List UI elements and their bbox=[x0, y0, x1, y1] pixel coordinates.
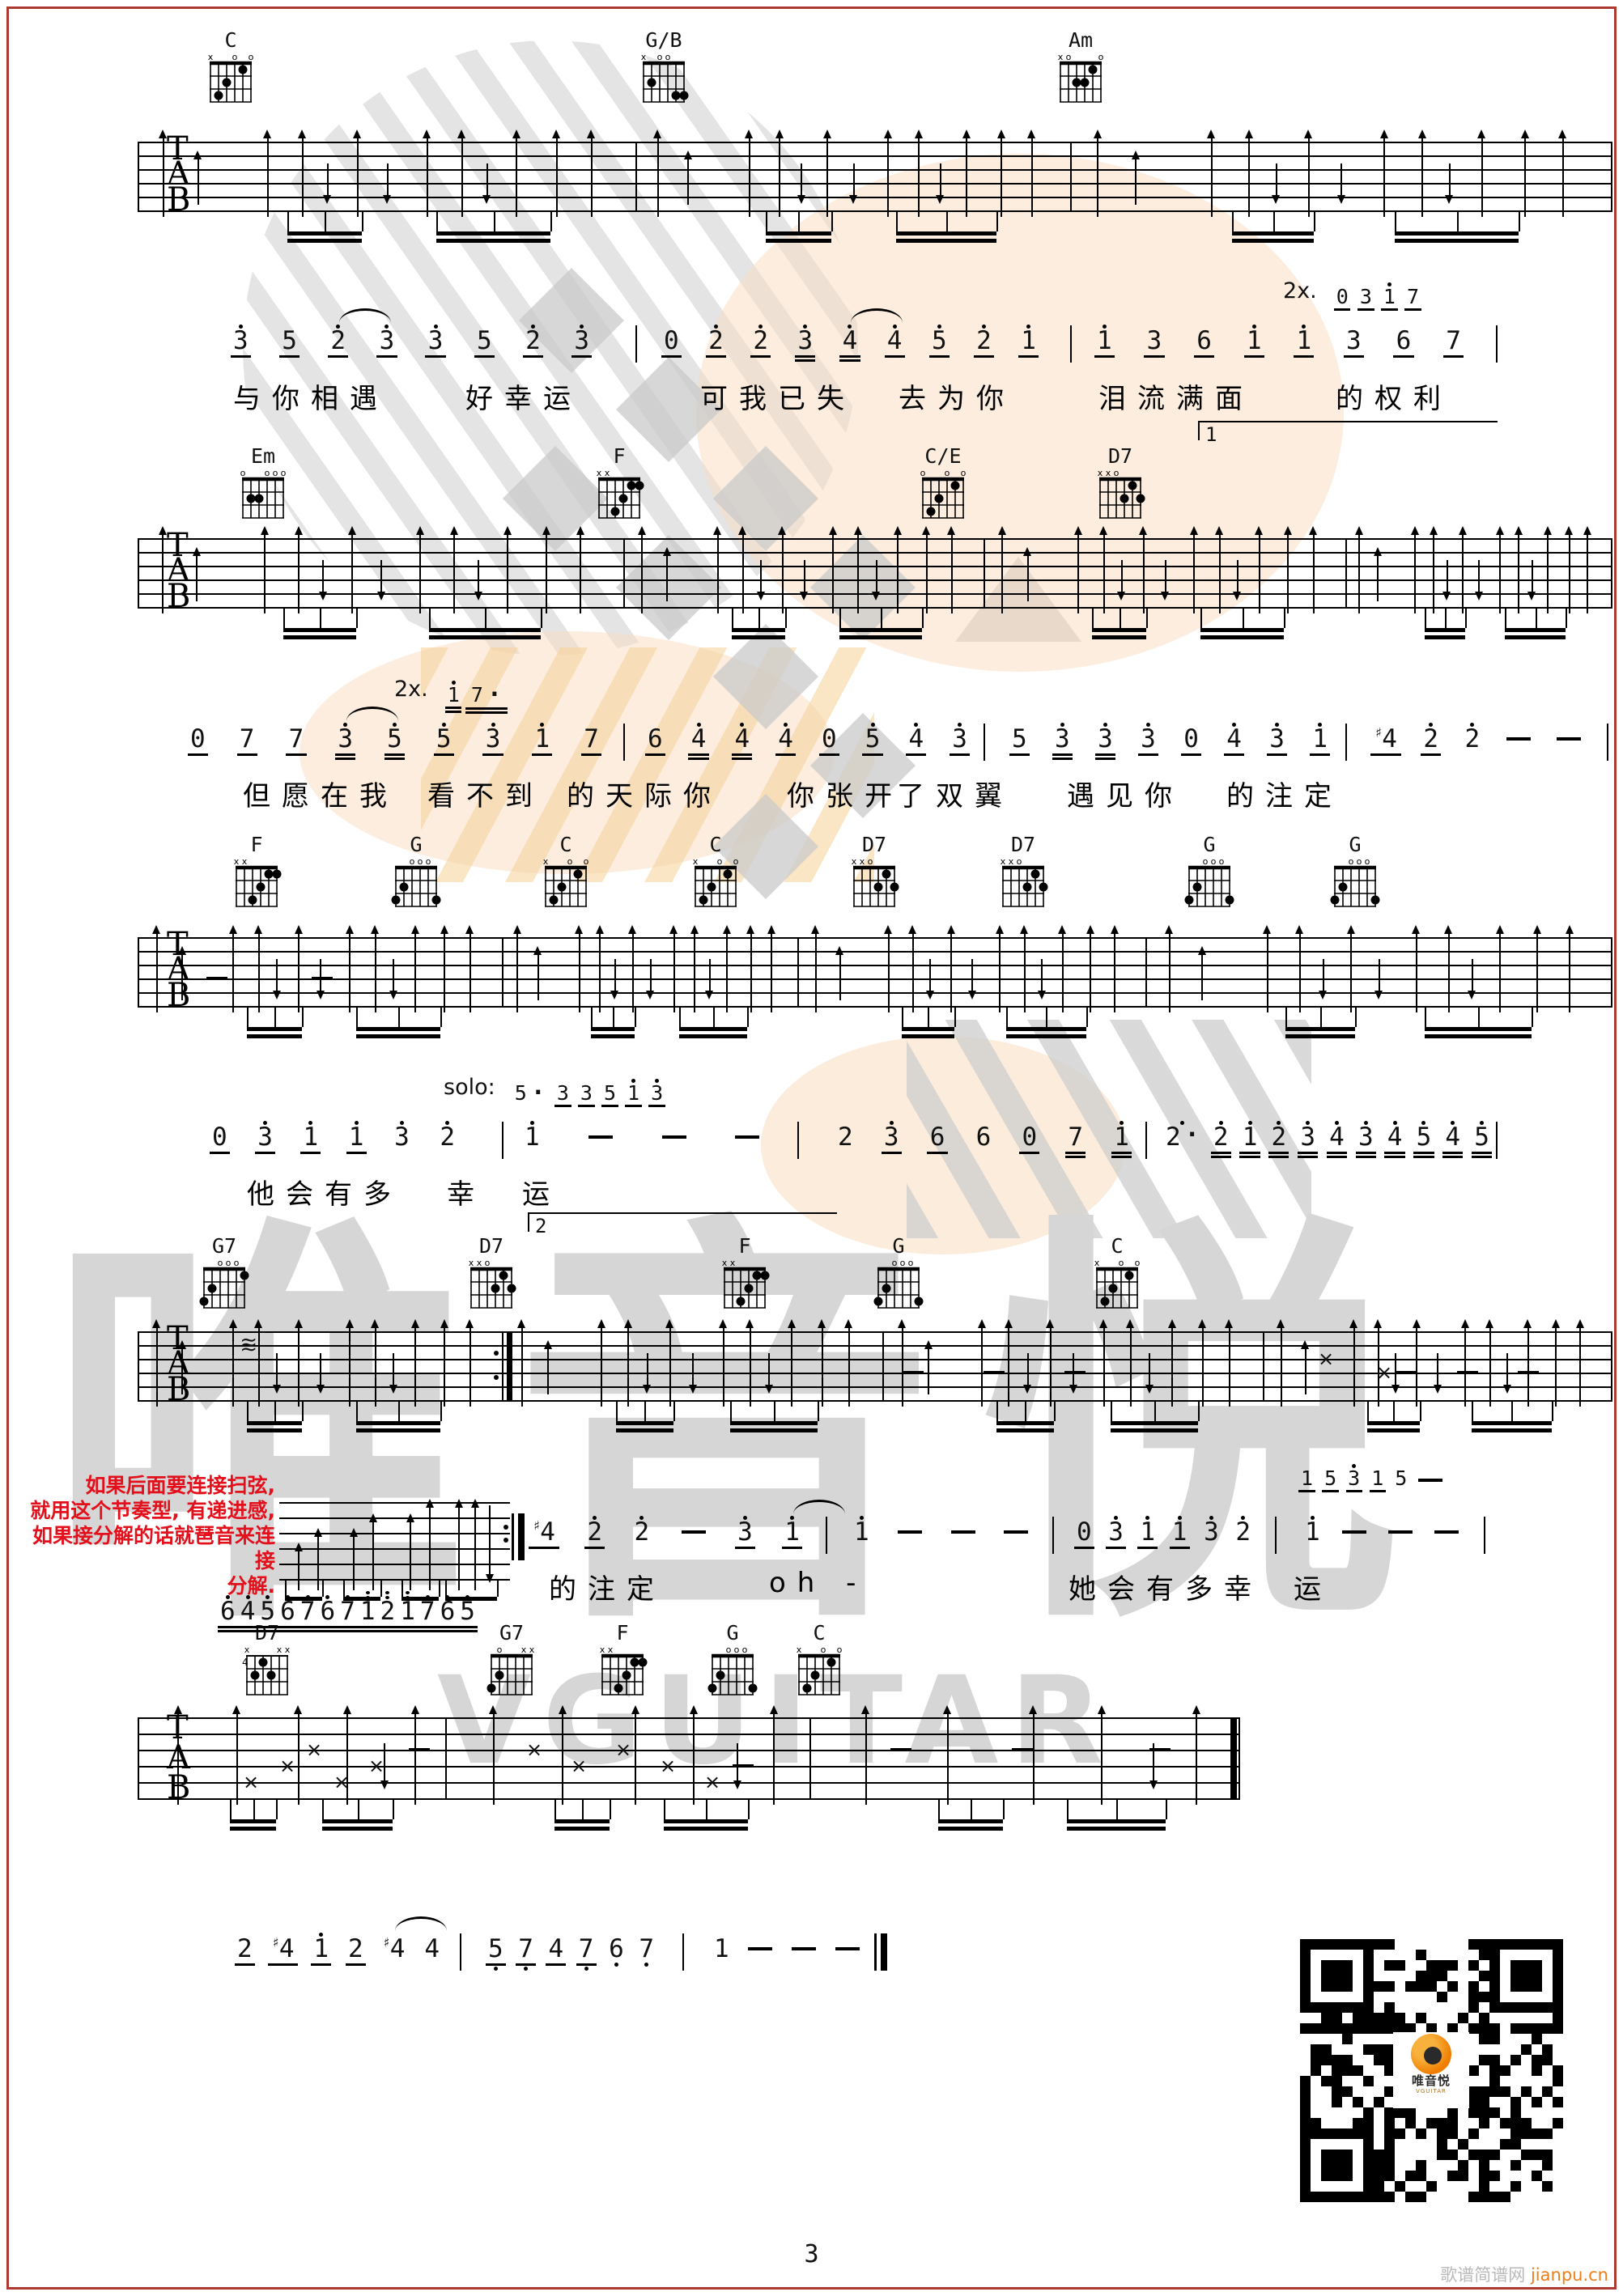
jianpu-digit: 4 bbox=[887, 329, 903, 354]
beam bbox=[732, 635, 786, 639]
underline bbox=[661, 355, 682, 358]
dash-note bbox=[588, 1135, 613, 1139]
jianpu-digit: 2 bbox=[525, 329, 541, 354]
qr-module bbox=[1384, 2013, 1395, 2023]
jianpu-digit: 6 bbox=[976, 1125, 992, 1150]
staff-barline bbox=[138, 538, 139, 609]
qr-module bbox=[1384, 2002, 1395, 2013]
underline bbox=[732, 753, 752, 756]
note-token: 7 bbox=[240, 719, 255, 763]
qr-module bbox=[1468, 2150, 1479, 2160]
jianpu-digit: 5 bbox=[260, 1599, 275, 1624]
arrowhead-up bbox=[411, 1705, 419, 1714]
underline bbox=[1370, 1490, 1386, 1492]
digit-row: 2 bbox=[976, 329, 992, 354]
arrowhead-up bbox=[159, 526, 167, 535]
underline bbox=[1065, 1156, 1086, 1158]
beam-stem bbox=[274, 1400, 276, 1421]
arrowhead-up bbox=[1418, 129, 1426, 138]
chord-name: D7 bbox=[848, 834, 900, 856]
strum-up-arrow bbox=[1353, 1326, 1355, 1407]
qr-module bbox=[1542, 2150, 1553, 2160]
jianpu-digit: 1 bbox=[1312, 727, 1328, 752]
digit-row: 3 bbox=[1141, 727, 1156, 752]
qr-module bbox=[1447, 1960, 1458, 1971]
staff-dash bbox=[312, 977, 333, 980]
qr-module bbox=[1405, 2192, 1416, 2202]
qr-module bbox=[1384, 1960, 1395, 1971]
strum-up-arrow bbox=[1143, 533, 1145, 613]
strum-up-arrow bbox=[918, 137, 920, 217]
note-token: 5 bbox=[1395, 1460, 1407, 1496]
strum-down-arrow bbox=[393, 959, 394, 992]
underline bbox=[465, 707, 507, 710]
svg-text:x: x bbox=[1001, 856, 1006, 867]
arrowhead-up bbox=[193, 547, 201, 556]
beam-stem bbox=[766, 210, 767, 231]
staff-line bbox=[138, 1734, 1238, 1735]
chord-name: C bbox=[540, 834, 592, 856]
qr-module bbox=[1521, 2023, 1532, 2034]
qr-module bbox=[1332, 2013, 1342, 2023]
digit-row: 7 bbox=[579, 1937, 594, 1962]
qr-finder-core bbox=[1321, 2150, 1353, 2181]
note-token bbox=[748, 1929, 772, 1950]
beam-stem bbox=[1116, 1798, 1118, 1819]
svg-text:o: o bbox=[567, 856, 573, 867]
note-token: 2 bbox=[753, 320, 768, 365]
jianpu-digit: 4 bbox=[1387, 1125, 1403, 1150]
digit-row: 7 bbox=[518, 1937, 533, 1962]
note-token: 3 bbox=[428, 320, 444, 365]
staff-dash bbox=[1064, 1371, 1086, 1374]
arrowhead-up bbox=[829, 526, 837, 535]
qr-module bbox=[1510, 2118, 1521, 2128]
strum-up-arrow bbox=[839, 953, 841, 1000]
arrowhead-up bbox=[653, 129, 661, 138]
strum-up-arrow bbox=[461, 137, 463, 217]
svg-text:o: o bbox=[485, 1258, 491, 1268]
note-token: 3 bbox=[884, 1117, 899, 1161]
arrowhead-down bbox=[800, 592, 808, 601]
note-token: 1 bbox=[304, 1117, 319, 1161]
qr-module bbox=[1468, 2107, 1479, 2118]
note-token: 3 bbox=[1098, 719, 1113, 767]
note-token: 3 bbox=[233, 320, 249, 365]
chord-C: Cxoo bbox=[1091, 1235, 1143, 1326]
arrowhead-up bbox=[450, 526, 458, 535]
digit-row: 1 bbox=[1305, 1520, 1320, 1545]
repeat-dot bbox=[494, 1375, 499, 1380]
chord-name: D7 bbox=[465, 1235, 517, 1258]
jianpu-digit: 3 bbox=[574, 329, 589, 354]
jianpu-digit: 2 bbox=[330, 329, 346, 354]
digit-row: 7 bbox=[289, 727, 304, 752]
beam-stem bbox=[839, 607, 841, 628]
qr-finder-core bbox=[1321, 1960, 1353, 1992]
arrowhead-up bbox=[854, 526, 862, 535]
jianpu-measure: 1 bbox=[714, 1929, 860, 1969]
staff-barline bbox=[138, 142, 139, 212]
dash-note bbox=[1418, 1479, 1442, 1482]
jianpu-measure: 077355317 bbox=[190, 719, 599, 767]
octave-dots-below bbox=[584, 1967, 588, 1973]
arrowhead-up bbox=[943, 1705, 951, 1714]
note-token: 2 bbox=[440, 1117, 455, 1157]
svg-text:o: o bbox=[1119, 1258, 1124, 1268]
strum-up-arrow bbox=[1135, 158, 1137, 205]
qr-module bbox=[1553, 2118, 1563, 2128]
qr-module bbox=[1532, 2034, 1542, 2044]
chord-G: Gooo bbox=[1183, 834, 1235, 924]
note-token: 1 bbox=[1114, 1117, 1129, 1165]
strum-up-arrow bbox=[177, 1712, 179, 1805]
page-number: 3 bbox=[0, 2240, 1623, 2268]
beam-stem bbox=[398, 1400, 400, 1421]
beam-stem bbox=[393, 1798, 394, 1819]
beam bbox=[1285, 1027, 1355, 1031]
repeat-thick-bar bbox=[518, 1513, 525, 1560]
arrowhead-up bbox=[587, 129, 595, 138]
tab-letters: TAB bbox=[167, 931, 190, 1007]
arrowhead-up bbox=[690, 925, 699, 934]
staff-line bbox=[138, 210, 1611, 212]
note-token: 2 bbox=[587, 1512, 602, 1556]
jianpu-digit: 4 bbox=[1445, 1125, 1460, 1150]
underline bbox=[1211, 1156, 1231, 1158]
arrowhead-down bbox=[482, 195, 491, 204]
jianpu-digit: 7 bbox=[289, 727, 304, 752]
mute-x-mark: × bbox=[571, 1756, 587, 1776]
note-token: 7 bbox=[1407, 278, 1419, 318]
strum-up-arrow bbox=[1281, 1326, 1282, 1407]
jianpu-digit: 1 bbox=[534, 727, 550, 752]
strum-up-arrow bbox=[1097, 137, 1098, 217]
note-token: 1 bbox=[854, 1512, 869, 1552]
underline bbox=[457, 1626, 478, 1628]
digit-row: 6 bbox=[220, 1599, 236, 1624]
note-token: 1 bbox=[1305, 1512, 1320, 1552]
jianpu-barline bbox=[826, 1517, 827, 1554]
qr-module bbox=[1479, 2055, 1489, 2065]
digit-row: 1 bbox=[534, 727, 550, 752]
qr-module bbox=[1510, 2160, 1521, 2171]
strum-up-arrow bbox=[1196, 1712, 1197, 1805]
strum-up-arrow bbox=[1562, 137, 1564, 217]
digit-row: 0 bbox=[1183, 727, 1199, 752]
underline bbox=[1472, 1152, 1492, 1154]
staff-line bbox=[138, 1331, 1611, 1333]
underline bbox=[235, 1963, 255, 1966]
digit-row: 1 bbox=[313, 1937, 329, 1962]
digit-row: 6 bbox=[930, 1125, 945, 1150]
note-token: 0 bbox=[212, 1117, 227, 1161]
arrowhead-down bbox=[757, 592, 765, 601]
jianpu-digit: 5 bbox=[604, 1083, 616, 1103]
strum-up-arrow bbox=[198, 158, 199, 205]
arrowhead-up bbox=[1576, 1319, 1584, 1328]
strum-up-arrow bbox=[822, 1326, 823, 1407]
digit-row: 6 bbox=[976, 1125, 992, 1150]
svg-text:o: o bbox=[908, 1258, 914, 1268]
strum-up-arrow bbox=[926, 533, 928, 613]
inset-jianpu-measure: 6456767121765 bbox=[220, 1591, 475, 1640]
beam bbox=[1285, 1034, 1355, 1038]
chord-name: G/B bbox=[638, 29, 690, 52]
jianpu-digit: 2 bbox=[380, 1599, 396, 1624]
digit-row: 3 bbox=[580, 1083, 593, 1103]
beam-stem bbox=[1067, 1798, 1069, 1819]
jianpu-measure: 2366071 bbox=[838, 1117, 1129, 1165]
beam bbox=[287, 231, 362, 236]
svg-text:x: x bbox=[597, 468, 602, 478]
beam-stem bbox=[1284, 607, 1285, 628]
underline bbox=[645, 753, 665, 756]
repeat-thin-bar bbox=[512, 1513, 514, 1560]
beam bbox=[938, 1827, 1003, 1831]
strum-up-arrow bbox=[601, 1326, 602, 1407]
beam-stem bbox=[747, 1006, 749, 1027]
underline bbox=[532, 753, 552, 756]
qr-module bbox=[1553, 2013, 1563, 2023]
qr-module bbox=[1405, 2118, 1416, 2128]
inset-up-arrow bbox=[353, 1535, 355, 1590]
staff-barline bbox=[797, 937, 799, 1008]
qr-module bbox=[1468, 1992, 1479, 2002]
qr-module bbox=[1553, 2097, 1563, 2107]
arrowhead-up bbox=[1058, 925, 1066, 934]
digit-row: 6 bbox=[648, 727, 663, 752]
staff-dash bbox=[903, 1371, 924, 1374]
jianpu-digit: 3 bbox=[884, 1125, 899, 1150]
qr-module bbox=[1521, 2128, 1532, 2139]
jianpu-digit: 4 bbox=[279, 1937, 295, 1962]
qr-module bbox=[1510, 2181, 1521, 2192]
digit-row: 1 bbox=[525, 1125, 540, 1150]
underline bbox=[1106, 1547, 1126, 1549]
underline bbox=[1322, 1490, 1338, 1492]
digit-row: 6 bbox=[440, 1599, 456, 1624]
strum-up-arrow bbox=[999, 932, 1001, 1012]
strum-down-arrow bbox=[1395, 1353, 1396, 1386]
arrowhead-up bbox=[778, 526, 786, 535]
arrowhead-up bbox=[1263, 925, 1271, 934]
arrowhead-up bbox=[1485, 1319, 1493, 1328]
chord-grid: xoo bbox=[793, 1645, 845, 1709]
note-token: 1 bbox=[313, 1929, 329, 1973]
note-token: 7 bbox=[289, 719, 304, 763]
svg-text:x: x bbox=[244, 1645, 250, 1655]
arrowhead-up bbox=[596, 925, 604, 934]
inset-up-arrow bbox=[410, 1521, 411, 1590]
strum-down-arrow bbox=[929, 959, 931, 992]
arrowhead-up bbox=[1374, 1319, 1382, 1328]
beam-stem bbox=[320, 607, 321, 628]
strum-up-arrow bbox=[1383, 137, 1385, 217]
qr-module bbox=[1489, 2192, 1500, 2202]
staff-barline bbox=[984, 538, 985, 609]
digit-row: 6 bbox=[1396, 329, 1412, 354]
note-token: 2 bbox=[976, 320, 992, 365]
arrowhead-up bbox=[1198, 1319, 1206, 1328]
qr-module bbox=[1489, 2065, 1500, 2076]
underline bbox=[578, 1105, 594, 1107]
note-token: 5 bbox=[282, 320, 297, 365]
svg-text:o: o bbox=[234, 1258, 240, 1268]
arrowhead-down bbox=[1374, 991, 1383, 999]
underline bbox=[237, 1626, 257, 1628]
arrowhead-down bbox=[380, 1780, 389, 1789]
dash-note bbox=[1388, 1530, 1413, 1534]
annotation-line: 2x.17· bbox=[394, 677, 502, 721]
qr-module bbox=[1542, 2023, 1553, 2034]
digit-row: 5 bbox=[1474, 1125, 1489, 1150]
arrowhead-down bbox=[1023, 1385, 1031, 1394]
note-token: 1 bbox=[1247, 320, 1262, 365]
staff-line bbox=[138, 538, 1611, 540]
arrowhead-up bbox=[947, 925, 955, 934]
beam bbox=[230, 1819, 276, 1823]
svg-text:x: x bbox=[242, 856, 248, 867]
jianpu-measure: ♯422 bbox=[1374, 719, 1581, 763]
strum-up-arrow bbox=[1202, 1326, 1204, 1407]
note-token: 1 bbox=[1312, 719, 1328, 763]
digit-row: 2 bbox=[635, 1520, 650, 1545]
digit-row: ♯4 bbox=[272, 1937, 295, 1962]
jianpu-digit: 2 bbox=[440, 1125, 455, 1150]
strum-down-arrow bbox=[393, 1353, 394, 1386]
beam-stem bbox=[230, 1798, 232, 1819]
underline bbox=[885, 355, 905, 358]
underline bbox=[317, 1630, 338, 1632]
chord-D7: D7xxo bbox=[848, 834, 900, 924]
strum-up-arrow bbox=[264, 533, 266, 613]
underline bbox=[523, 355, 543, 358]
qr-module bbox=[1500, 2139, 1510, 2150]
qr-module bbox=[1447, 1981, 1458, 1992]
chord-F: Fxx bbox=[597, 1622, 648, 1712]
qr-center-logo: 唯音悦 VGUITAR bbox=[1393, 2032, 1469, 2108]
note-token: 1 bbox=[525, 1117, 540, 1157]
qr-module bbox=[1426, 1960, 1437, 1971]
digit-row: ♯4 bbox=[383, 1937, 406, 1962]
beam-stem bbox=[928, 1006, 929, 1027]
volta-number: 2 bbox=[535, 1215, 546, 1237]
beam-stem bbox=[774, 1400, 775, 1421]
underline bbox=[950, 753, 970, 756]
strum-up-arrow bbox=[641, 533, 643, 613]
arrowhead-up bbox=[1566, 925, 1574, 934]
svg-text:x: x bbox=[605, 468, 610, 478]
qr-module bbox=[1332, 2097, 1342, 2107]
beam bbox=[664, 1819, 748, 1823]
strum-up-arrow bbox=[537, 953, 539, 1000]
annotation-label: solo: bbox=[444, 1075, 495, 1100]
underline bbox=[1442, 1152, 1463, 1154]
digit-row: 4 bbox=[424, 1937, 440, 1962]
beam bbox=[1111, 1428, 1198, 1432]
chord-grid: ooo bbox=[917, 468, 969, 533]
digit-row: 2 bbox=[348, 1937, 363, 1962]
digit-row: 2 bbox=[1464, 727, 1480, 752]
beam bbox=[356, 1034, 440, 1038]
qr-module bbox=[1468, 2128, 1479, 2139]
lyrics-segment: 可我已失 bbox=[700, 376, 856, 416]
underline bbox=[1356, 1152, 1376, 1154]
strum-down-arrow bbox=[1340, 163, 1342, 197]
beam bbox=[896, 231, 996, 236]
qr-module bbox=[1384, 2139, 1395, 2150]
chord-grid: xx bbox=[231, 856, 283, 921]
note-token: 6 bbox=[976, 1117, 992, 1157]
strum-up-arrow bbox=[1101, 1712, 1103, 1805]
chord-grid: xoo bbox=[690, 856, 741, 921]
qr-module bbox=[1479, 2192, 1489, 2202]
note-token: 1 bbox=[1172, 1512, 1188, 1556]
jianpu-digit: 1 bbox=[448, 685, 460, 705]
arrowhead-up bbox=[996, 925, 1004, 934]
note-token: 1 bbox=[1296, 320, 1311, 365]
qr-module bbox=[1416, 2128, 1426, 2139]
qr-module bbox=[1332, 2076, 1342, 2086]
note-token: 5· bbox=[515, 1075, 546, 1111]
qr-module bbox=[1374, 2192, 1384, 2202]
qr-module bbox=[1416, 1971, 1426, 1981]
strum-up-arrow bbox=[832, 533, 834, 613]
strum-up-arrow bbox=[258, 1326, 260, 1407]
qr-module bbox=[1447, 2150, 1458, 2160]
qr-module bbox=[1395, 2181, 1405, 2192]
strum-up-arrow bbox=[469, 932, 471, 1012]
note-token: ♯4 bbox=[1374, 719, 1397, 763]
arrowhead-up bbox=[1046, 1319, 1054, 1328]
jianpu-digit: 3 bbox=[952, 727, 967, 752]
dash-note bbox=[1342, 1530, 1366, 1534]
arrowhead-down bbox=[1442, 592, 1451, 601]
digit-row: 4 bbox=[691, 727, 707, 752]
chord-name: F bbox=[231, 834, 283, 856]
qr-module bbox=[1532, 2150, 1542, 2160]
arrowhead-down bbox=[377, 592, 385, 601]
underline bbox=[257, 1630, 278, 1632]
tie-arc bbox=[793, 1500, 845, 1514]
jianpu-digit: 4 bbox=[1329, 1125, 1345, 1150]
chord-name: C bbox=[690, 834, 741, 856]
jianpu-digit: 4 bbox=[1226, 727, 1242, 752]
qr-module bbox=[1447, 2118, 1458, 2128]
note-token: 7 bbox=[579, 1929, 594, 1973]
digit-row: 5 bbox=[477, 329, 492, 354]
beam bbox=[1006, 1027, 1086, 1031]
arrowhead-up bbox=[908, 925, 916, 934]
mute-x-mark: × bbox=[526, 1740, 542, 1759]
note-token: 7 bbox=[1446, 320, 1461, 365]
beam bbox=[436, 231, 550, 236]
strum-up-arrow bbox=[599, 932, 601, 1012]
strum-up-arrow bbox=[1555, 1326, 1557, 1407]
red-instruction-note: 如果后面要连接扫弦, 就用这个节奏型, 有递进感, 如果接分解的话就琶音来连接 … bbox=[24, 1473, 275, 1598]
beam bbox=[839, 635, 922, 639]
chord-name: F bbox=[719, 1235, 771, 1258]
beam-stem bbox=[613, 1006, 614, 1027]
lyrics-segment: 的注定 bbox=[549, 1567, 665, 1606]
arrowhead-up bbox=[455, 1499, 463, 1508]
strum-down-arrow bbox=[1276, 163, 1277, 197]
arrowhead-down bbox=[389, 991, 397, 999]
digit-row: 3 bbox=[428, 329, 444, 354]
arrowhead-up bbox=[1565, 526, 1573, 535]
staff-line bbox=[138, 566, 1611, 567]
